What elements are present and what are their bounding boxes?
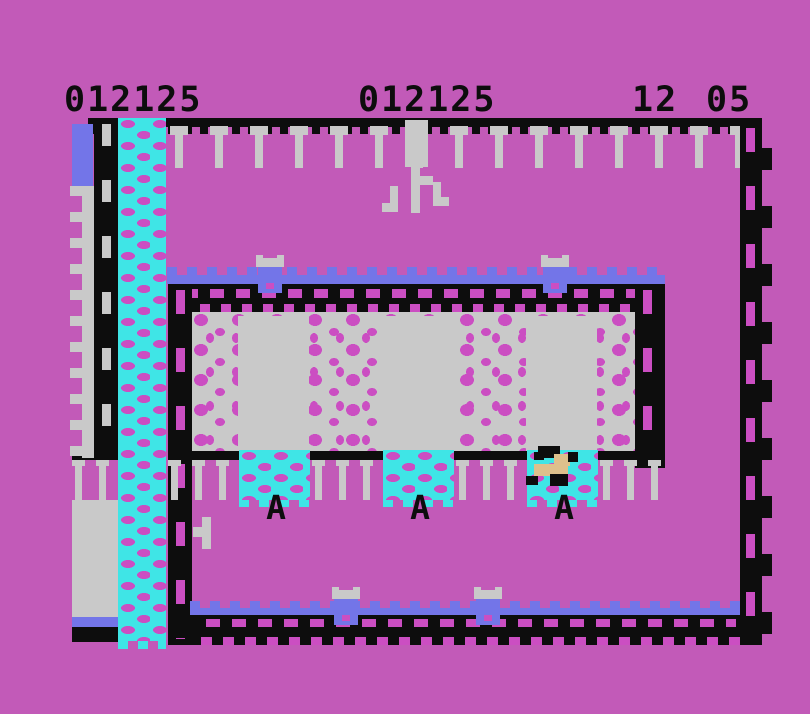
hud-number-1: 012125 xyxy=(64,84,202,116)
trestle-marker: A xyxy=(401,492,439,524)
player-shorts xyxy=(550,474,568,486)
hanging-block xyxy=(405,120,428,167)
floor-segment xyxy=(596,451,665,460)
bird-body xyxy=(334,599,358,625)
bird-sprite xyxy=(541,255,569,267)
floor-segment xyxy=(168,451,240,460)
right-wall xyxy=(740,118,762,645)
bird-head xyxy=(481,590,495,599)
room-top-wall xyxy=(168,284,665,312)
trapeze-left-foot xyxy=(382,203,398,212)
player-hair xyxy=(534,452,544,460)
mid-ledge xyxy=(167,275,665,284)
bird-body xyxy=(258,267,282,293)
player-sprite xyxy=(524,444,582,490)
bird-sprite xyxy=(474,587,502,599)
bird-ear xyxy=(353,587,360,599)
ceiling-teeth-stems xyxy=(170,135,742,168)
door-panel-2 xyxy=(382,316,453,452)
trestle-marker: A xyxy=(257,492,295,524)
bird-head xyxy=(339,590,353,599)
trestle-marker: A xyxy=(545,492,583,524)
trapeze-right-foot xyxy=(433,197,449,206)
climbing-vine xyxy=(70,186,95,458)
bird-ear xyxy=(495,587,502,599)
ceiling-teeth-caps xyxy=(170,126,742,135)
gray-block-black-strip xyxy=(72,627,118,642)
player-foot xyxy=(526,476,538,485)
bird-head xyxy=(548,258,562,267)
left-blue-panel xyxy=(72,124,93,186)
floor-segment xyxy=(310,451,384,460)
door-panel-1 xyxy=(238,316,309,452)
bird-ear xyxy=(256,255,263,267)
left-wall xyxy=(94,118,120,458)
game-screen[interactable]: 012125 012125 12 05 A A A xyxy=(0,0,810,714)
bird-ear xyxy=(562,255,569,267)
hud-number-2: 012125 xyxy=(358,84,496,116)
player-fist xyxy=(568,452,578,462)
floor-segment xyxy=(452,451,528,460)
bird-ear xyxy=(541,255,548,267)
door-panel-3 xyxy=(526,316,597,452)
small-hook xyxy=(202,517,211,549)
bird-body xyxy=(476,599,500,625)
room-right-wall xyxy=(635,284,665,468)
bird-sprite xyxy=(256,255,284,267)
bottom-wall xyxy=(190,615,740,645)
bird-ear xyxy=(332,587,339,599)
hud-number-3: 12 xyxy=(632,84,678,116)
mid-ledge-crenellation xyxy=(167,267,665,275)
vine-teeth xyxy=(70,186,82,458)
bird-ear xyxy=(474,587,481,599)
bird-head xyxy=(263,258,277,267)
bottom-ledge-crenellation xyxy=(190,601,740,608)
bird-ear xyxy=(277,255,284,267)
cyan-ladder-column xyxy=(118,118,166,641)
trapeze-tab xyxy=(420,176,433,185)
trapeze-stem xyxy=(411,167,420,213)
bird-body xyxy=(543,267,567,293)
gray-block xyxy=(72,500,118,618)
hud-number-4: 05 xyxy=(706,84,752,116)
bottom-ledge xyxy=(190,608,740,615)
bird-sprite xyxy=(332,587,360,599)
gray-block-blue-strip xyxy=(72,617,118,627)
small-hook-tab xyxy=(193,527,203,537)
